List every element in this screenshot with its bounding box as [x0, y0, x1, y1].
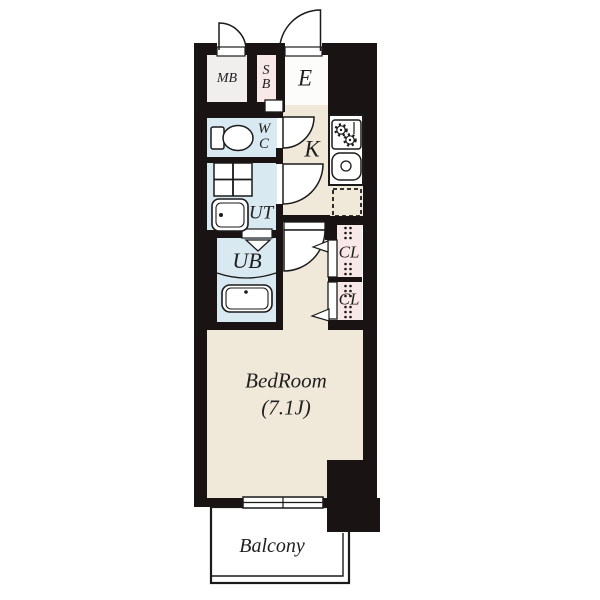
- room-label-ut: UT: [249, 204, 273, 223]
- wall-block-top-right: [328, 43, 377, 115]
- room-label-wc: W C: [258, 122, 271, 152]
- floorplan: MB S B E W C K UT UB CL CL BedRoom (7.1J…: [0, 0, 600, 600]
- wall-between-closets: [328, 277, 362, 282]
- kitchen-sink-icon: [332, 153, 361, 180]
- entrance-door-threshold: [285, 47, 322, 56]
- wall-hall-left-seg2: [276, 148, 283, 164]
- bedroom-door-leaf: [284, 222, 325, 230]
- wall-wc-ut-divider: [194, 157, 283, 163]
- pillar-balcony: [327, 498, 380, 532]
- wall-hall-left-seg1: [276, 112, 283, 117]
- ub-door-threshold: [242, 229, 272, 238]
- room-label-balcony: Balcony: [239, 536, 305, 556]
- wall-bottom-left: [194, 498, 243, 507]
- room-label-bedroom: BedRoom (7.1J): [245, 368, 327, 423]
- wall-top-right-seg: [322, 43, 328, 55]
- wall-below-ub: [194, 322, 283, 330]
- room-label-kitchen: K: [304, 138, 319, 161]
- entrance-door-swing: [280, 10, 321, 51]
- toilet-icon: [211, 126, 253, 151]
- closet-upper-door: [328, 240, 337, 277]
- stove-icon: [332, 120, 361, 149]
- wc-line1: W: [258, 122, 271, 137]
- entrance-step: [265, 100, 283, 112]
- room-label-sb: S B: [262, 64, 271, 92]
- wall-hall-left-seg3: [276, 204, 283, 330]
- wall-mb-sb-divider: [247, 55, 257, 103]
- bedroom-size: (7.1J): [245, 395, 327, 422]
- sb-line2: B: [262, 78, 271, 92]
- bedroom-name: BedRoom: [245, 368, 327, 395]
- wall-below-closet: [328, 320, 363, 330]
- wc-line2: C: [258, 137, 271, 152]
- wall-stub-closet-top: [325, 222, 337, 240]
- room-label-closet-lower: CL: [339, 291, 360, 308]
- mb-door-threshold: [217, 47, 245, 56]
- room-label-entrance: E: [298, 67, 312, 90]
- wall-right: [363, 115, 377, 460]
- washer-space-icon: [214, 163, 252, 196]
- sb-line1: S: [262, 64, 271, 78]
- wall-ub-left: [207, 230, 217, 322]
- wall-kitchen-bedroom: [283, 215, 330, 222]
- mb-door-swing: [219, 23, 246, 50]
- room-label-mb: MB: [217, 72, 237, 86]
- utility-sink-icon: [212, 199, 248, 231]
- room-label-closet-upper: CL: [339, 244, 360, 261]
- room-label-ub: UB: [232, 250, 261, 272]
